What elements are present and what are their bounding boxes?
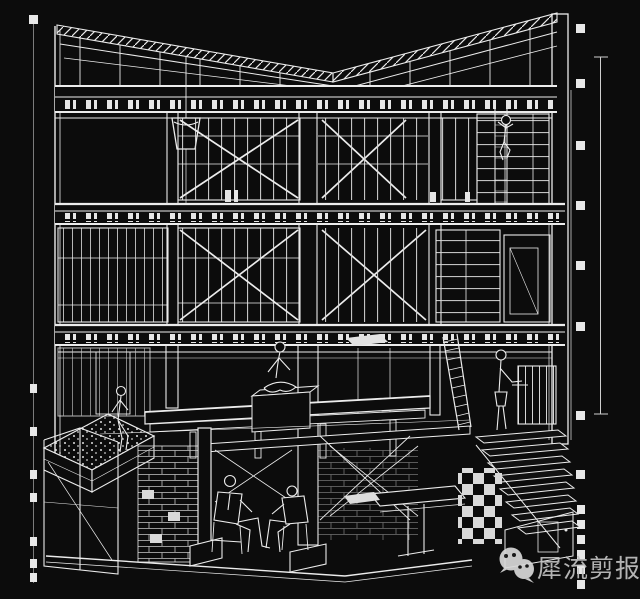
shelf-rack bbox=[436, 230, 500, 322]
floor-slab-middle bbox=[55, 325, 565, 346]
watermark-text: 犀流剪报 bbox=[537, 549, 640, 585]
section-drawing bbox=[0, 0, 640, 599]
shelf-rack bbox=[477, 114, 549, 204]
checker-wall bbox=[458, 468, 502, 544]
basement-column bbox=[198, 428, 211, 554]
railing bbox=[518, 366, 556, 424]
brick-wall bbox=[138, 446, 202, 562]
architectural-section-screenshot: 犀流剪报 bbox=[0, 0, 640, 599]
roof-beam-band bbox=[55, 86, 557, 112]
